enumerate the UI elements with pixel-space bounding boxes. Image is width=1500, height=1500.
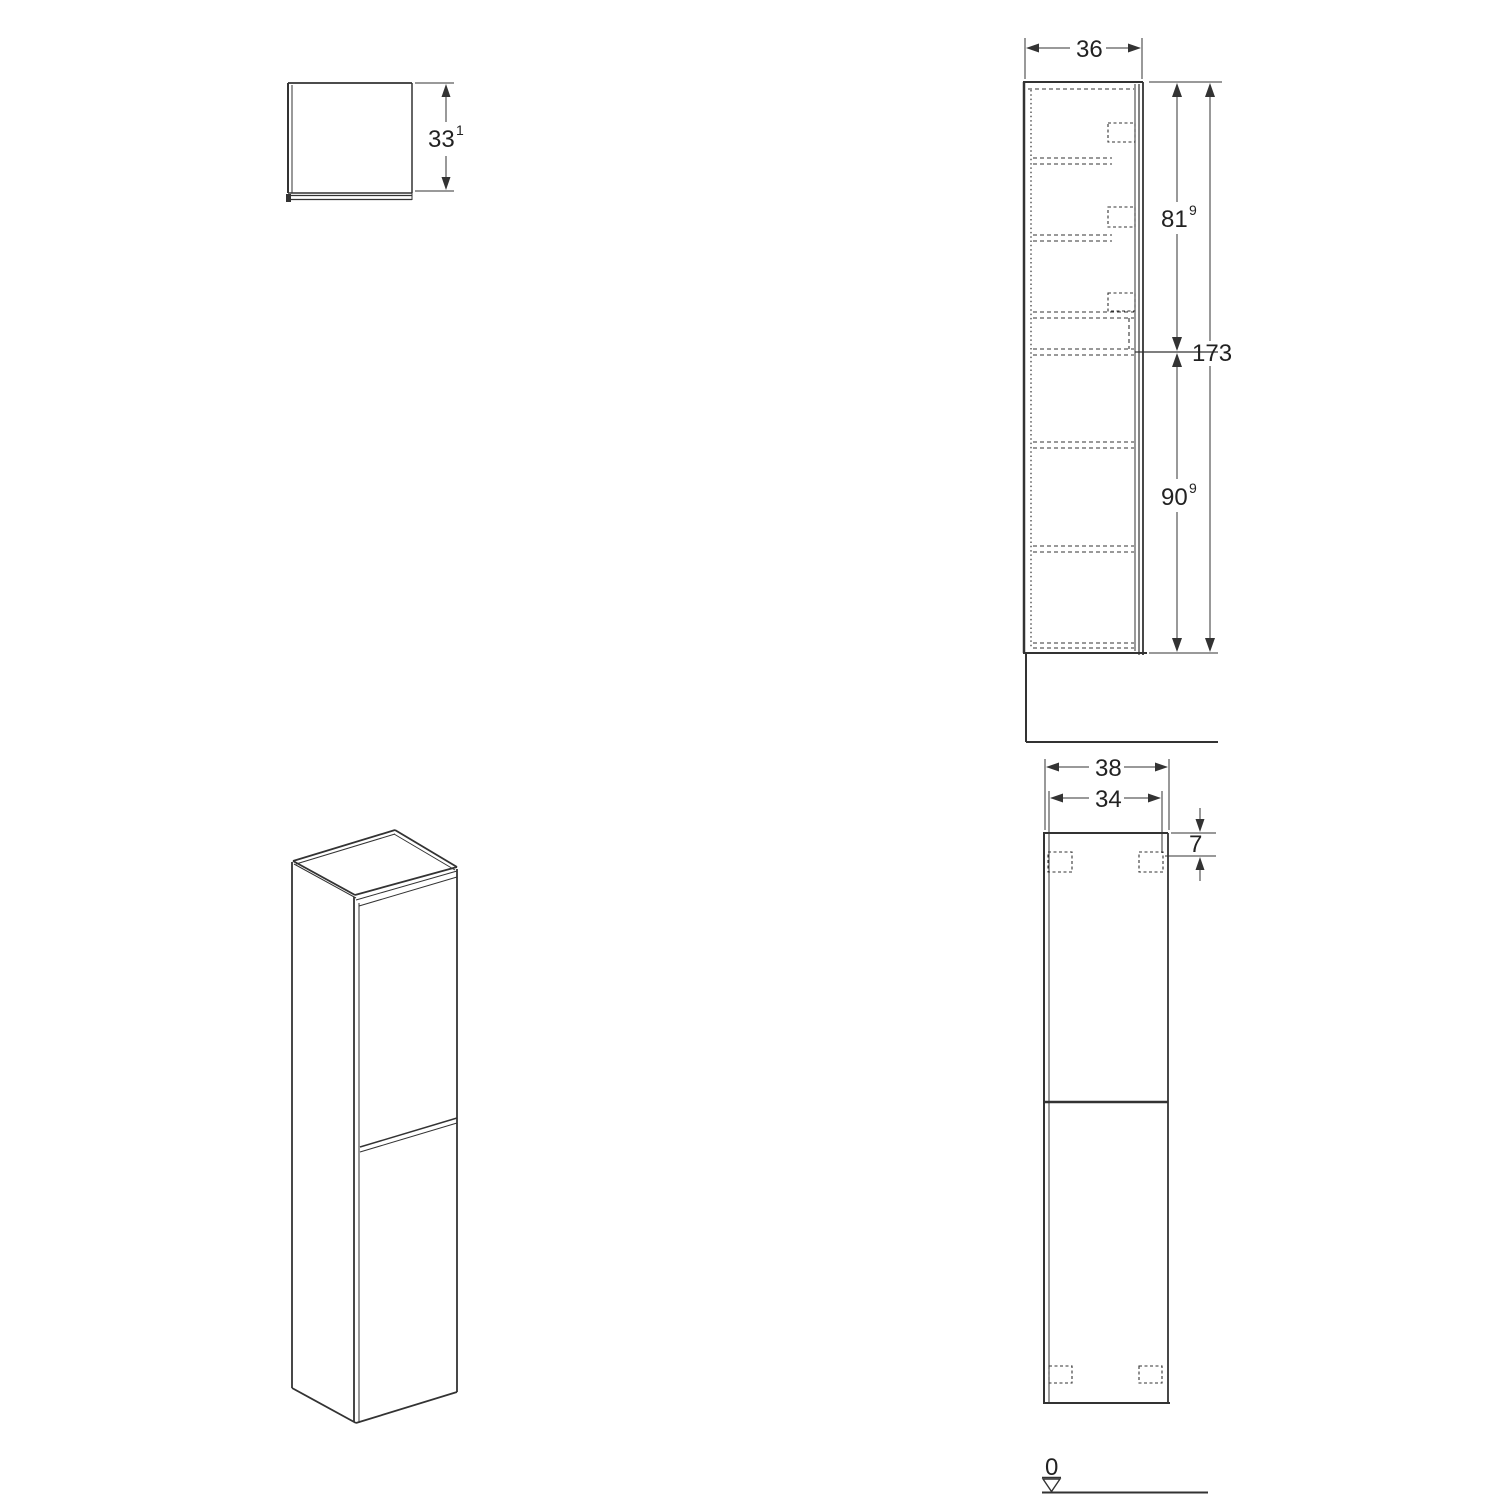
outer-width-dimension-label: 38: [1095, 755, 1122, 782]
upper-height-dimension-label: 81: [1161, 206, 1188, 233]
side-panel-end-cap: [286, 194, 291, 202]
side-view-carcass: [1023, 82, 1147, 655]
arrowhead-up: [1172, 353, 1182, 367]
bracket-offset-dimension-label: 7: [1189, 831, 1202, 858]
depth-dimension-superscript: 1: [456, 122, 464, 138]
total-height-dimension-label: 173: [1192, 340, 1232, 367]
arrowhead-down: [442, 177, 451, 190]
arrowhead-left: [1026, 44, 1039, 53]
arrowhead-down: [1172, 638, 1182, 652]
arrowhead-up: [1196, 857, 1205, 870]
width-dimension-label: 36: [1076, 36, 1103, 63]
top-view-drawing: 33 1: [260, 55, 470, 220]
dimension-heights: 81 9 90 9 173: [1135, 82, 1232, 653]
floor-datum: 0: [1042, 1454, 1208, 1493]
side-view-shelf-lines: [1028, 89, 1134, 648]
arrowhead-left: [1050, 794, 1063, 803]
arrowhead-up: [442, 84, 451, 97]
perspective-view-drawing: [280, 820, 470, 1435]
side-section-view-drawing: 36: [1005, 25, 1245, 760]
top-view-door-edge: [286, 193, 412, 202]
arrowhead-right: [1155, 763, 1168, 772]
lower-height-dimension-label: 90: [1161, 484, 1188, 511]
datum-triangle-icon: [1043, 1479, 1060, 1492]
arrowhead-up: [1172, 83, 1182, 97]
arrowhead-right: [1128, 44, 1141, 53]
perspective-bottom-edges: [292, 1388, 457, 1423]
depth-dimension-label: 33: [428, 126, 455, 153]
perspective-door-seam: [360, 1118, 457, 1152]
arrowhead-right: [1148, 794, 1161, 803]
perspective-top-face: [293, 830, 457, 906]
dimension-depth-33: 33 1: [415, 83, 464, 191]
front-view-drawing: 38 34: [1030, 745, 1225, 1500]
side-view-mounting-brackets: [1108, 123, 1135, 311]
technical-drawing-canvas: 33 1 36: [0, 0, 1500, 1500]
front-view-cabinet-body: [1043, 833, 1170, 1403]
dimension-width-36: 36: [1025, 36, 1142, 79]
arrowhead-left: [1046, 763, 1059, 772]
arrowhead-down: [1172, 337, 1182, 351]
arrowhead-up: [1205, 83, 1215, 97]
inner-width-dimension-label: 34: [1095, 786, 1122, 813]
dimension-bracket-offset-7: 7: [1165, 808, 1216, 881]
upper-height-superscript: 9: [1189, 202, 1197, 218]
wall-floor-outline: [1026, 653, 1218, 742]
dimension-inner-width-34: 34: [1049, 786, 1162, 853]
front-view-mounting-brackets: [1048, 852, 1163, 1383]
arrowhead-down: [1205, 638, 1215, 652]
lower-height-superscript: 9: [1189, 480, 1197, 496]
top-view-cabinet-outline: [288, 83, 412, 193]
